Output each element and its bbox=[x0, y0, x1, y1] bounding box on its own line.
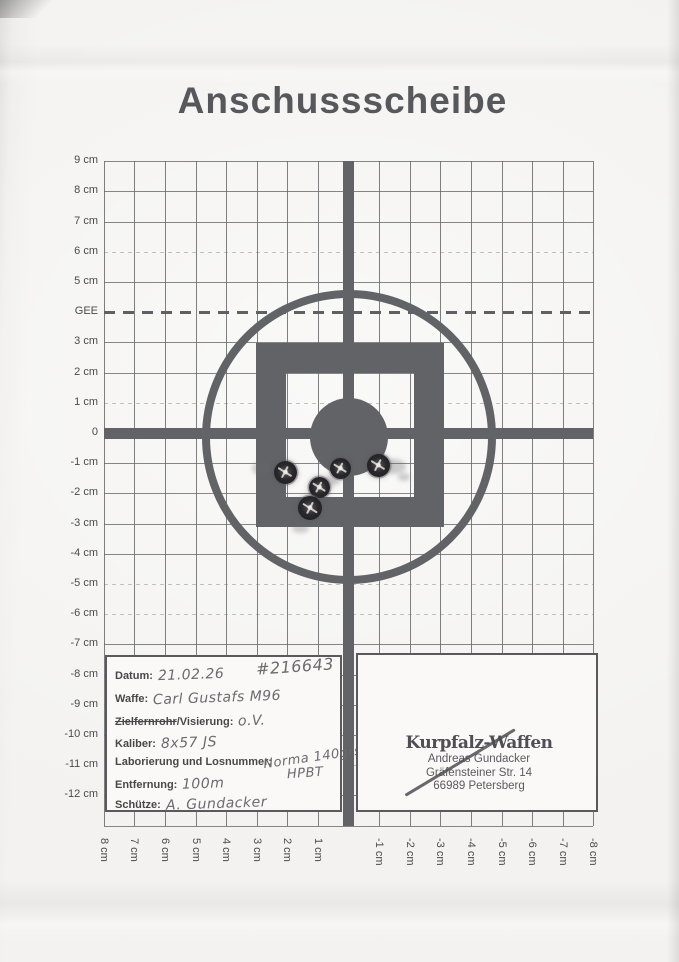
y-axis-label: 2 cm bbox=[36, 366, 98, 378]
y-axis-label: -6 cm bbox=[36, 607, 98, 619]
datum-label: Datum: bbox=[115, 670, 153, 682]
x-axis-label: -5 cm bbox=[496, 838, 508, 866]
schuetze-value: A. Gundacker bbox=[166, 794, 267, 814]
stamp-person-name: Andreas Gundacker bbox=[382, 753, 576, 767]
visierung-label: /Visierung: bbox=[177, 716, 234, 728]
y-axis-label: 1 cm bbox=[36, 396, 98, 408]
form-row-laborierung: Laborierung und Losnummer: Norma 140grs.… bbox=[115, 756, 272, 768]
y-axis-label: -12 cm bbox=[36, 788, 98, 800]
reference-number: #216643 bbox=[255, 654, 334, 678]
y-axis-label: 9 cm bbox=[36, 154, 98, 166]
smudge-mark bbox=[252, 462, 272, 475]
data-form-box: Datum:21.02.26 #216643 Waffe:Carl Gustaf… bbox=[105, 655, 342, 812]
x-axis-label: -8 cm bbox=[587, 838, 599, 866]
x-axis-label: -6 cm bbox=[526, 838, 538, 866]
x-axis-label: -2 cm bbox=[404, 838, 416, 866]
bullet-hole bbox=[309, 477, 330, 498]
bullet-hole bbox=[274, 461, 297, 484]
visierung-value: o.V. bbox=[238, 713, 266, 730]
form-row-kaliber: Kaliber:8x57 JS bbox=[115, 735, 217, 751]
y-axis-label: -4 cm bbox=[36, 547, 98, 559]
smudge-mark bbox=[292, 524, 309, 533]
waffe-label: Waffe: bbox=[115, 693, 148, 705]
y-axis-label: 6 cm bbox=[36, 245, 98, 257]
laborierung-value-line2: HPBT bbox=[287, 765, 324, 783]
y-axis-label: 0 bbox=[36, 426, 98, 438]
y-axis-label: -11 cm bbox=[36, 758, 98, 770]
dealer-stamp: Kurpfalz-Waffen Andreas Gundacker Gräfen… bbox=[382, 733, 576, 794]
x-axis-label: 3 cm bbox=[251, 838, 263, 862]
y-axis-label: -1 cm bbox=[36, 456, 98, 468]
y-axis-label: -8 cm bbox=[36, 668, 98, 680]
form-row-visierung: Zielfernrohr/Visierung:o.V. bbox=[115, 713, 266, 729]
datum-value: 21.02.26 bbox=[158, 666, 225, 684]
form-row-waffe: Waffe:Carl Gustafs M96 bbox=[115, 690, 281, 706]
y-axis-label: -3 cm bbox=[36, 517, 98, 529]
bullet-hole bbox=[298, 496, 322, 520]
y-axis-label: -9 cm bbox=[36, 698, 98, 710]
x-axis-label: -1 cm bbox=[373, 838, 385, 866]
x-axis-label: 4 cm bbox=[220, 838, 232, 862]
x-axis-label: -7 cm bbox=[557, 838, 569, 866]
form-row-datum: Datum:21.02.26 bbox=[115, 667, 224, 683]
kaliber-label: Kaliber: bbox=[115, 738, 156, 750]
form-row-schuetze: Schütze:A. Gundacker bbox=[115, 796, 267, 812]
entfernung-label: Entfernung: bbox=[115, 779, 177, 791]
y-axis-label: -5 cm bbox=[36, 577, 98, 589]
form-row-entfernung: Entfernung:100m bbox=[115, 776, 225, 792]
y-axis-label: 7 cm bbox=[36, 215, 98, 227]
waffe-value: Carl Gustafs M96 bbox=[153, 688, 282, 708]
bullet-hole bbox=[367, 454, 390, 477]
laborierung-label: Laborierung und Losnummer: bbox=[115, 756, 272, 768]
x-axis-label: 1 cm bbox=[312, 838, 324, 862]
smudge-mark bbox=[398, 473, 410, 481]
y-axis-label: 8 cm bbox=[36, 184, 98, 196]
kaliber-value: 8x57 JS bbox=[161, 734, 218, 752]
bullet-hole bbox=[330, 458, 351, 479]
x-axis-label: 6 cm bbox=[159, 838, 171, 862]
x-axis-label: 8 cm bbox=[98, 838, 110, 862]
y-axis-label: 5 cm bbox=[36, 275, 98, 287]
y-axis-label: 3 cm bbox=[36, 335, 98, 347]
entfernung-value: 100m bbox=[182, 775, 225, 792]
y-axis-label: -10 cm bbox=[36, 728, 98, 740]
target-grid-area: 9 cm8 cm7 cm6 cm5 cmGEE3 cm2 cm1 cm0-1 c… bbox=[0, 0, 679, 962]
y-axis-label: -2 cm bbox=[36, 486, 98, 498]
y-axis-label: -7 cm bbox=[36, 637, 98, 649]
x-axis-label: -4 cm bbox=[465, 838, 477, 866]
x-axis-label: 5 cm bbox=[190, 838, 202, 862]
zielfernrohr-label-struck: Zielfernrohr bbox=[115, 716, 177, 728]
x-axis-label: 2 cm bbox=[281, 838, 293, 862]
stamp-street: Gräfensteiner Str. 14 bbox=[382, 767, 576, 781]
schuetze-label: Schütze: bbox=[115, 799, 161, 811]
x-axis-label: -3 cm bbox=[434, 838, 446, 866]
stamp-box: Kurpfalz-Waffen Andreas Gundacker Gräfen… bbox=[356, 653, 598, 812]
y-axis-label: GEE bbox=[36, 305, 98, 317]
scanned-target-sheet: Anschussscheibe 9 cm8 cm7 cm6 cm5 cmGEE3… bbox=[0, 0, 679, 962]
x-axis-label: 7 cm bbox=[128, 838, 140, 862]
